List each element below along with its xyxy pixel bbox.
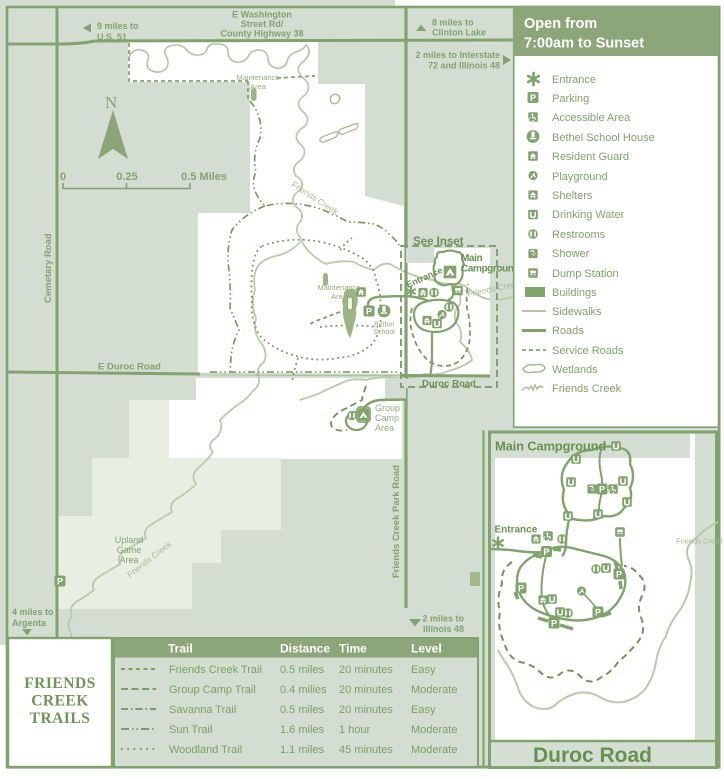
svg-text:Distance: Distance bbox=[280, 642, 330, 656]
svg-text:Buildings: Buildings bbox=[552, 287, 597, 299]
svg-text:County Highway 38: County Highway 38 bbox=[220, 29, 303, 39]
svg-text:Friends Creek: Friends Creek bbox=[552, 383, 622, 395]
svg-text:8 miles to: 8 miles to bbox=[432, 18, 474, 28]
svg-text:Easy: Easy bbox=[411, 704, 436, 716]
svg-text:Open from: Open from bbox=[524, 16, 597, 32]
svg-text:Parking: Parking bbox=[552, 93, 589, 105]
svg-text:Group: Group bbox=[375, 403, 400, 413]
svg-text:Restrooms: Restrooms bbox=[552, 229, 606, 241]
svg-text:Dump Station: Dump Station bbox=[552, 268, 619, 280]
svg-text:20 minutes: 20 minutes bbox=[339, 684, 393, 696]
svg-text:Moderate: Moderate bbox=[411, 724, 457, 736]
svg-text:TRAILS: TRAILS bbox=[30, 710, 91, 727]
svg-text:Argenta: Argenta bbox=[12, 618, 47, 628]
svg-text:Main Campground: Main Campground bbox=[495, 439, 606, 454]
svg-text:2 miles to Interstate: 2 miles to Interstate bbox=[415, 50, 500, 60]
svg-text:Drinking Water: Drinking Water bbox=[552, 209, 625, 221]
svg-text:7:00am to Sunset: 7:00am to Sunset bbox=[524, 36, 644, 52]
svg-text:N: N bbox=[105, 93, 117, 112]
svg-text:Area: Area bbox=[331, 292, 348, 301]
svg-text:Time: Time bbox=[339, 642, 367, 656]
svg-text:Moderate: Moderate bbox=[411, 684, 457, 696]
svg-text:See Inset: See Inset bbox=[413, 236, 464, 248]
svg-text:0.5 miles: 0.5 miles bbox=[280, 664, 325, 676]
svg-text:Duroc Road: Duroc Road bbox=[422, 379, 476, 390]
svg-text:0.25: 0.25 bbox=[116, 171, 137, 183]
svg-text:Campground: Campground bbox=[461, 264, 520, 275]
svg-text:School: School bbox=[373, 329, 395, 336]
svg-text:Duroc Road: Duroc Road bbox=[533, 744, 652, 767]
svg-text:Sidewalks: Sidewalks bbox=[552, 306, 602, 318]
svg-text:20 minutes: 20 minutes bbox=[339, 664, 393, 676]
svg-text:Cemetary Road: Cemetary Road bbox=[43, 233, 54, 303]
svg-text:0.5 miles: 0.5 miles bbox=[280, 704, 325, 716]
svg-text:Savanna Trail: Savanna Trail bbox=[169, 704, 236, 716]
svg-text:Trail: Trail bbox=[168, 642, 193, 656]
svg-text:Maintenance: Maintenance bbox=[237, 73, 280, 82]
svg-text:FRIENDS: FRIENDS bbox=[24, 675, 96, 692]
svg-text:1.6 miles: 1.6 miles bbox=[280, 724, 325, 736]
svg-text:Entrance: Entrance bbox=[495, 525, 538, 536]
svg-text:Entrance: Entrance bbox=[552, 74, 596, 86]
svg-text:Service Roads: Service Roads bbox=[552, 345, 624, 357]
svg-text:Roads: Roads bbox=[552, 325, 584, 337]
svg-text:Maintenance: Maintenance bbox=[318, 283, 361, 292]
svg-text:Moderate: Moderate bbox=[411, 744, 457, 756]
svg-text:Area: Area bbox=[250, 82, 267, 91]
svg-text:Wetlands: Wetlands bbox=[552, 364, 598, 376]
svg-text:Area: Area bbox=[119, 555, 138, 565]
svg-text:0.4 milies: 0.4 milies bbox=[280, 684, 327, 696]
svg-text:Level: Level bbox=[411, 642, 442, 656]
svg-text:45 minutes: 45 minutes bbox=[339, 744, 393, 756]
svg-text:Resident Guard: Resident Guard bbox=[552, 151, 629, 163]
svg-text:E Duroc Road: E Duroc Road bbox=[98, 362, 161, 373]
svg-text:Street Rd/: Street Rd/ bbox=[241, 19, 284, 29]
svg-text:Clinton Lake: Clinton Lake bbox=[432, 28, 486, 38]
svg-text:Woodland Trail: Woodland Trail bbox=[169, 744, 242, 756]
svg-text:Illinois 48: Illinois 48 bbox=[423, 624, 464, 634]
svg-text:Bethel: Bethel bbox=[374, 322, 394, 329]
svg-text:20 minutes: 20 minutes bbox=[339, 704, 393, 716]
svg-text:4 miles to: 4 miles to bbox=[12, 607, 54, 617]
svg-text:2 miles to: 2 miles to bbox=[422, 614, 464, 624]
svg-text:Sun Trail: Sun Trail bbox=[169, 724, 212, 736]
svg-text:0: 0 bbox=[60, 171, 66, 183]
svg-text:Friends Creek Park Road: Friends Creek Park Road bbox=[391, 465, 402, 578]
svg-text:Bethel School House: Bethel School House bbox=[552, 132, 655, 144]
svg-text:Shower: Shower bbox=[552, 248, 590, 260]
svg-text:Accessible Area: Accessible Area bbox=[552, 112, 631, 124]
svg-text:Playground: Playground bbox=[552, 171, 608, 183]
svg-text:U.S. 51: U.S. 51 bbox=[97, 32, 127, 42]
svg-text:72 and Illinois 48: 72 and Illinois 48 bbox=[428, 61, 500, 71]
svg-text:Main: Main bbox=[461, 253, 482, 264]
svg-text:Camp: Camp bbox=[375, 413, 399, 423]
svg-text:Easy: Easy bbox=[411, 664, 436, 676]
svg-text:1 hour: 1 hour bbox=[339, 724, 371, 736]
svg-text:0.5 Miles: 0.5 Miles bbox=[181, 171, 227, 183]
svg-text:1.1 miles: 1.1 miles bbox=[280, 744, 325, 756]
svg-text:Friends Creek Trail: Friends Creek Trail bbox=[169, 664, 262, 676]
svg-text:Group Camp Trail: Group Camp Trail bbox=[169, 684, 256, 696]
svg-text:Area: Area bbox=[375, 423, 394, 433]
svg-text:Friends Creek: Friends Creek bbox=[676, 537, 723, 546]
svg-text:E Washington: E Washington bbox=[232, 9, 292, 19]
svg-text:CREEK: CREEK bbox=[31, 693, 89, 710]
svg-text:Game: Game bbox=[117, 545, 142, 555]
svg-text:Shelters: Shelters bbox=[552, 190, 593, 202]
svg-text:9 miles to: 9 miles to bbox=[97, 21, 139, 31]
svg-text:Upland: Upland bbox=[115, 535, 144, 545]
